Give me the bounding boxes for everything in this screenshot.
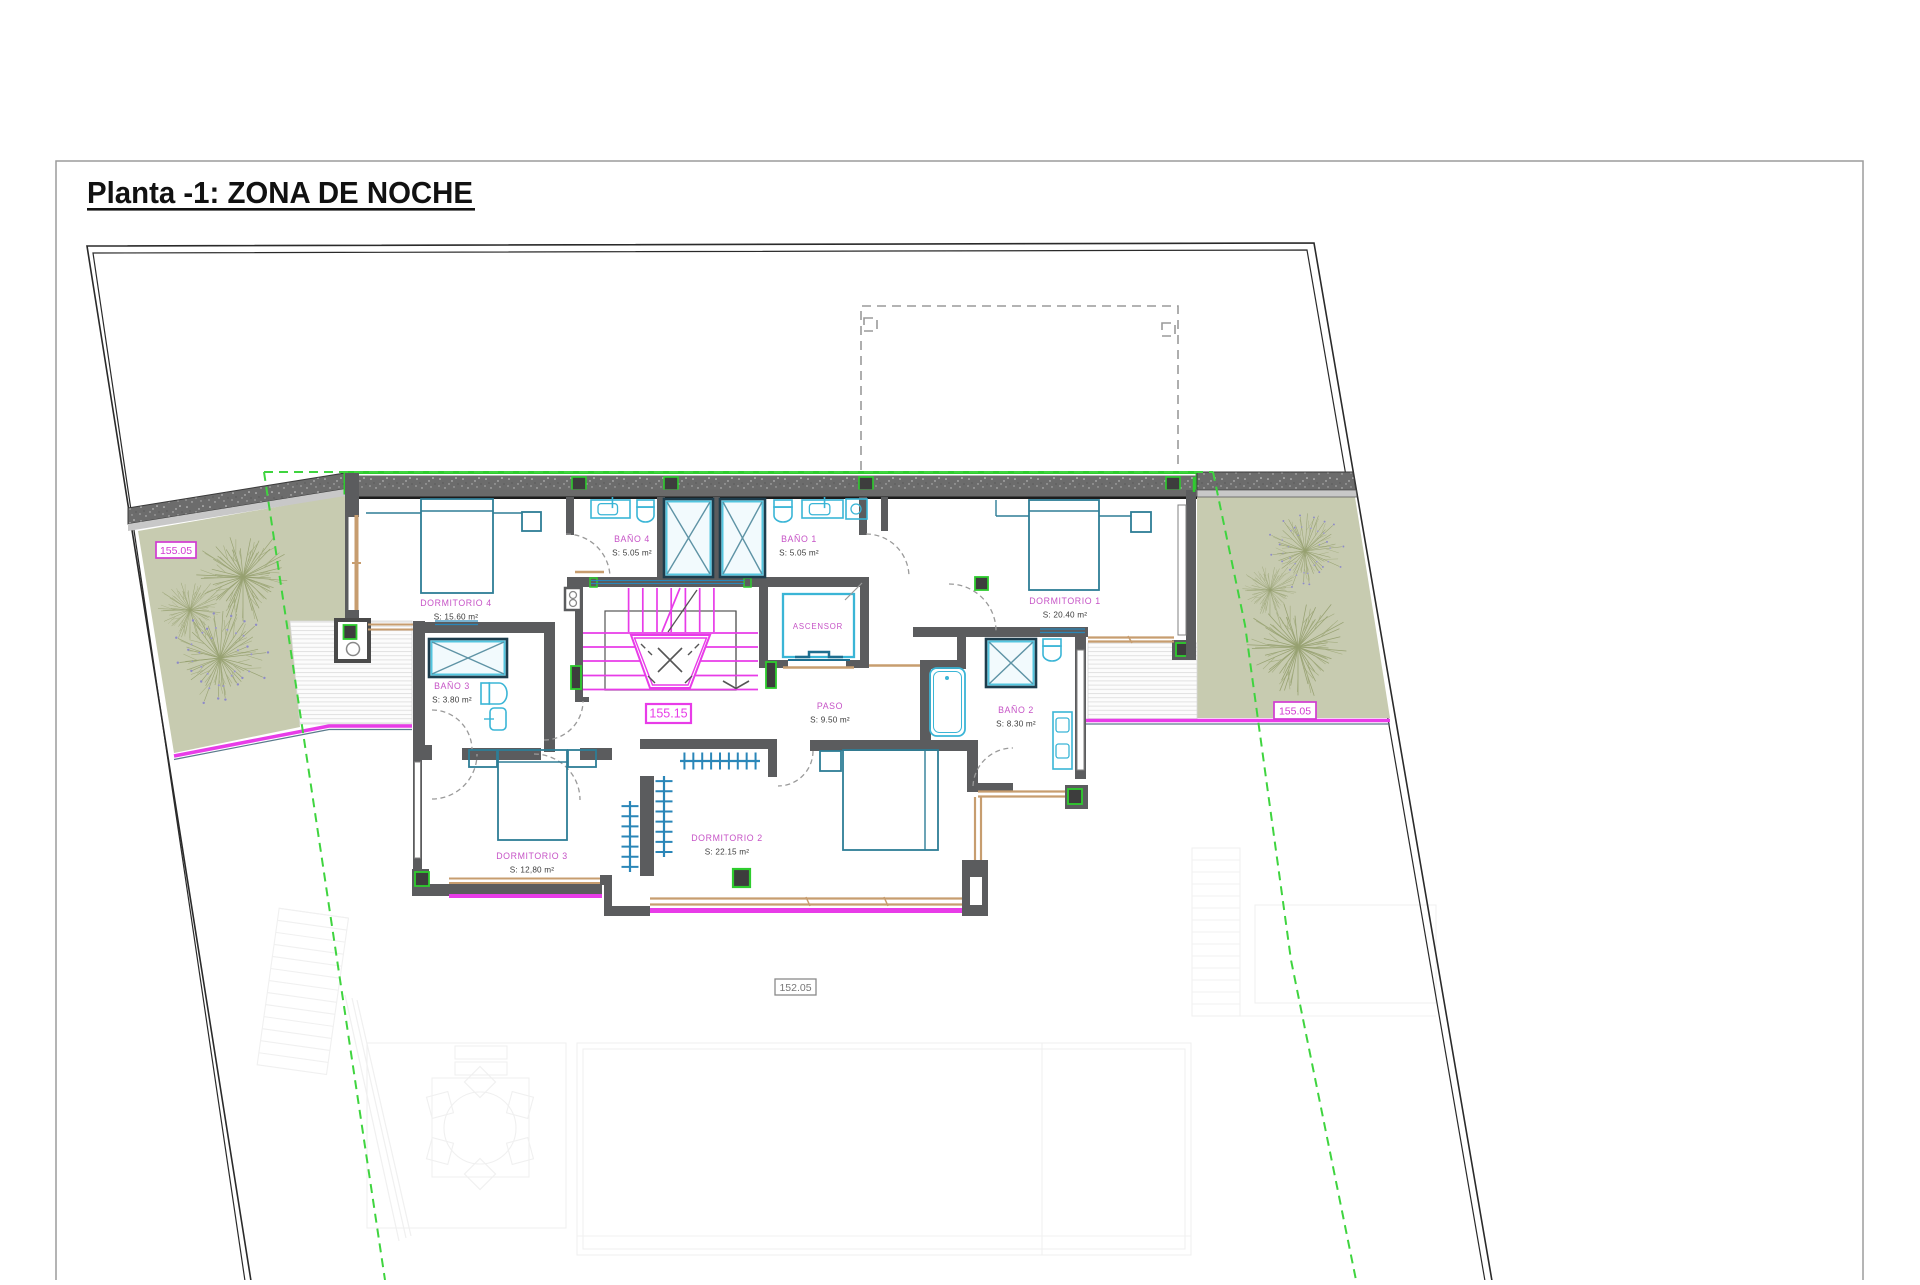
svg-text:BAÑO 3: BAÑO 3 xyxy=(434,681,470,691)
svg-text:DORMITORIO 3: DORMITORIO 3 xyxy=(496,851,568,861)
svg-text:BAÑO 4: BAÑO 4 xyxy=(614,534,650,544)
svg-text:S: 22.15 m²: S: 22.15 m² xyxy=(705,848,750,857)
svg-text:ASCENSOR: ASCENSOR xyxy=(793,622,843,631)
svg-text:DORMITORIO 4: DORMITORIO 4 xyxy=(420,598,492,608)
svg-text:DORMITORIO 1: DORMITORIO 1 xyxy=(1029,596,1101,606)
svg-text:155.15: 155.15 xyxy=(649,706,687,720)
svg-text:BAÑO 1: BAÑO 1 xyxy=(781,534,817,544)
svg-text:152.05: 152.05 xyxy=(779,982,811,994)
svg-text:S: 3.80 m²: S: 3.80 m² xyxy=(432,696,472,705)
svg-text:Planta -1: ZONA DE NOCHE: Planta -1: ZONA DE NOCHE xyxy=(87,175,473,210)
svg-text:S: 5.05 m²: S: 5.05 m² xyxy=(779,549,819,558)
svg-text:155.05: 155.05 xyxy=(160,545,192,557)
svg-text:DORMITORIO 2: DORMITORIO 2 xyxy=(691,833,763,843)
svg-text:BAÑO 2: BAÑO 2 xyxy=(998,705,1034,715)
svg-text:S: 5.05 m²: S: 5.05 m² xyxy=(612,549,652,558)
svg-text:155.05: 155.05 xyxy=(1279,705,1311,717)
svg-text:S: 15.60 m²: S: 15.60 m² xyxy=(434,613,479,622)
svg-text:S: 20.40 m²: S: 20.40 m² xyxy=(1043,611,1088,620)
svg-text:S: 8.30 m²: S: 8.30 m² xyxy=(996,720,1036,729)
svg-text:S: 9.50 m²: S: 9.50 m² xyxy=(810,716,850,725)
svg-text:PASO: PASO xyxy=(817,701,843,711)
svg-text:S: 12,80 m²: S: 12,80 m² xyxy=(510,866,555,875)
